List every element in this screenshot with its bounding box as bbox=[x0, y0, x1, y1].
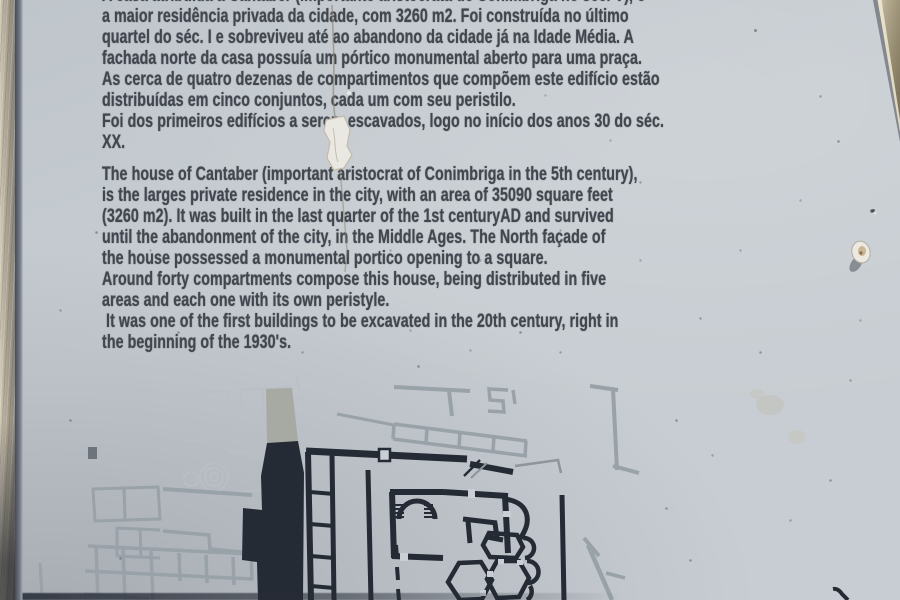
portuguese-paragraph: A casa atribuída a Cantaber (importante … bbox=[102, 0, 755, 153]
chip bbox=[847, 209, 877, 274]
wall-square-notch bbox=[379, 449, 390, 461]
city-wall-gray-cap bbox=[266, 388, 298, 443]
house-plan-walls bbox=[306, 451, 848, 600]
frame-left-edge bbox=[0, 0, 15, 600]
information-panel-photo: A casa atribuída a Cantaber (importante … bbox=[0, 0, 900, 600]
english-paragraph: The house of Cantaber (important aristoc… bbox=[102, 164, 755, 353]
frame-left-shadow bbox=[15, 0, 23, 600]
site-plan-map bbox=[20, 370, 900, 600]
small-dark-block bbox=[88, 447, 97, 459]
